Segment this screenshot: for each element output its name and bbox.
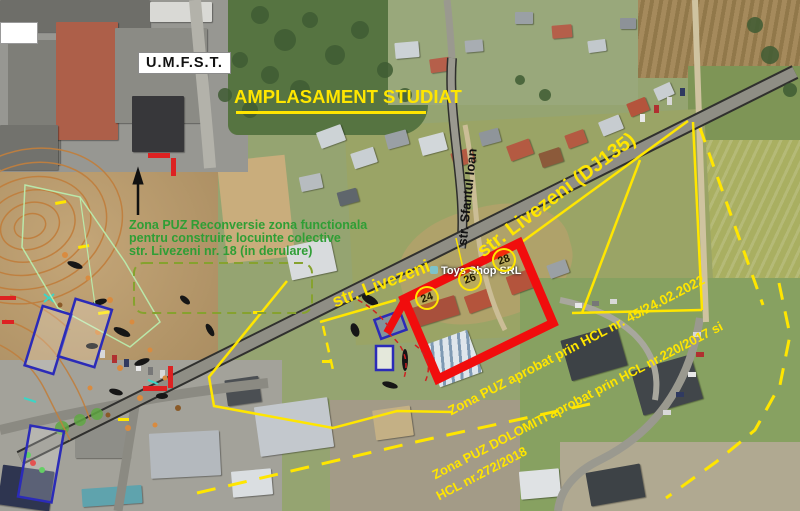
aerial-planning-map: U.M.F.S.T. AMPLASAMENT STUDIAT Zona PUZ … [0, 0, 800, 511]
map-title: AMPLASAMENT STUDIAT [234, 86, 462, 108]
north-arrow-icon [133, 168, 143, 215]
contour-lines [0, 125, 143, 328]
road-network [0, 0, 795, 511]
annotation-overlay [0, 0, 800, 511]
map-title-underline [236, 111, 426, 114]
business-icon [430, 266, 438, 274]
reconversie-note-line3: str. Livezeni nr. 18 (in derulare) [129, 245, 312, 258]
reconversie-site-inner-line [80, 197, 95, 305]
survey-black-marks [66, 259, 408, 399]
institution-label: U.M.F.S.T. [138, 52, 231, 74]
white-label-box [0, 22, 38, 44]
reconversie-dashed-frame [134, 263, 312, 313]
